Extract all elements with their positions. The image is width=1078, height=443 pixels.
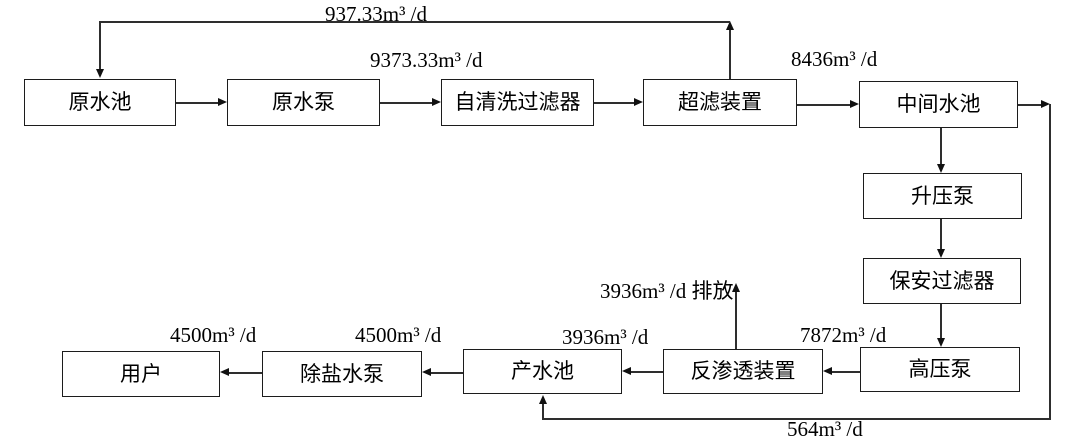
pump-to-filter-arrowhead [432, 98, 441, 106]
node-desalted-water-pump: 除盐水泵 [262, 351, 422, 397]
edge-desalt-to-user-line [228, 372, 262, 374]
node-booster-pump: 升压泵 [863, 173, 1022, 219]
node-self-cleaning-filter: 自清洗过滤器 [441, 79, 594, 126]
edge-bypass-riser-line [542, 403, 544, 419]
flow-label-bypass: 564m³ /d [787, 419, 863, 440]
edge-bypass-right-line [1049, 104, 1051, 419]
edge-ro-discharge-line [735, 291, 737, 349]
edge-uf-to-midpool-line [797, 104, 852, 106]
edge-secfilter-to-hp-line [940, 304, 942, 339]
node-high-pressure-pump: 高压泵 [860, 347, 1020, 392]
edge-backwash-drop-line [99, 21, 101, 70]
edge-bypass-out-line [1018, 104, 1042, 106]
edge-booster-to-secfilter-line [940, 219, 942, 250]
pool-to-pump-arrowhead [218, 98, 227, 106]
pool-to-desalt-arrowhead [422, 368, 431, 376]
edge-ro-to-pool-line [630, 371, 663, 373]
flow-label-hp-to-ro: 7872m³ /d [800, 325, 886, 346]
backwash-down-arrowhead [96, 69, 104, 78]
node-security-filter: 保安过滤器 [863, 258, 1021, 304]
filter-to-uf-arrowhead [634, 98, 643, 106]
node-ro-unit: 反渗透装置 [663, 349, 823, 394]
edge-pool-to-desalt-line [430, 372, 463, 374]
edge-midpool-to-booster-line [940, 128, 942, 166]
node-product-pool: 产水池 [463, 349, 622, 394]
edge-filter-to-uf-line [594, 102, 636, 104]
hp-to-ro-arrowhead [823, 367, 832, 375]
flow-label-uf-output: 8436m³ /d [791, 49, 877, 70]
ro-discharge-arrowhead [732, 283, 740, 292]
flow-label-ro-to-pool: 3936m³ /d [562, 327, 648, 348]
edge-pump-to-filter-line [380, 102, 434, 104]
node-uf-unit: 超滤装置 [643, 79, 797, 126]
node-raw-water-pump: 原水泵 [227, 79, 380, 126]
process-flow-diagram: 原水池 原水泵 自清洗过滤器 超滤装置 中间水池 升压泵 保安过滤器 高压泵 反… [0, 0, 1078, 443]
secfilter-to-hp-arrowhead [937, 338, 945, 347]
flow-label-raw-feed: 9373.33m³ /d [370, 50, 482, 71]
edge-bypass-bottom-line [542, 418, 1051, 420]
ro-to-pool-arrowhead [622, 367, 631, 375]
edge-backwash-top-line [99, 21, 730, 23]
uf-to-midpool-arrowhead [850, 100, 859, 108]
edge-pool-to-pump-line [176, 102, 220, 104]
flow-label-ro-discharge: 3936m³ /d 排放 [600, 281, 733, 302]
edge-backwash-riser-line [729, 27, 731, 79]
node-intermediate-pool: 中间水池 [859, 81, 1018, 128]
node-raw-water-pool: 原水池 [24, 79, 176, 126]
desalt-to-user-arrowhead [220, 368, 229, 376]
midpool-to-booster-arrowhead [937, 164, 945, 173]
edge-hp-to-ro-line [831, 371, 860, 373]
booster-to-secfilter-arrowhead [937, 249, 945, 258]
node-users: 用户 [62, 351, 220, 397]
flow-label-pump-to-user: 4500m³ /d [170, 325, 256, 346]
flow-label-pool-to-pump: 4500m³ /d [355, 325, 441, 346]
bypass-up-arrowhead [539, 395, 547, 404]
